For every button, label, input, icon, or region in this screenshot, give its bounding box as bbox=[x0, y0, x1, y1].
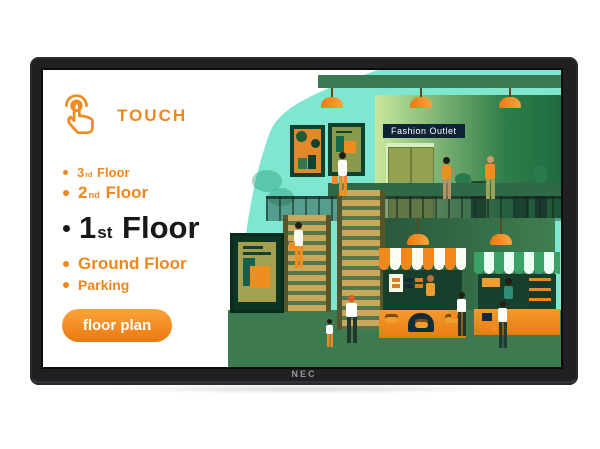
bottle-shelf bbox=[529, 278, 551, 308]
floor-label: 2nd Floor bbox=[78, 183, 148, 203]
product-image: TOUCH 3rd Floor 2nd Floor 1st Floor Grou… bbox=[0, 0, 600, 449]
lamp-cord bbox=[509, 88, 511, 97]
bullet-icon bbox=[63, 225, 70, 232]
digital-signage-totem[interactable] bbox=[230, 233, 284, 313]
ceiling-beam bbox=[318, 75, 561, 88]
floor-label: Parking bbox=[78, 277, 129, 293]
person-shopper bbox=[498, 301, 507, 348]
person-mother bbox=[346, 295, 357, 343]
hand-tap-icon bbox=[59, 92, 103, 140]
floor-label: 1st Floor bbox=[79, 210, 200, 246]
lamp-cord bbox=[420, 88, 422, 97]
person-server bbox=[426, 275, 435, 296]
person-boy bbox=[326, 319, 333, 347]
floor-item-parking[interactable]: Parking bbox=[63, 277, 129, 293]
shopping-bag-icon bbox=[491, 323, 497, 331]
kiosk-interior bbox=[478, 274, 556, 309]
escalator-right bbox=[337, 190, 385, 330]
floor-item-3rd[interactable]: 3rd Floor bbox=[63, 165, 130, 180]
pendant-lamp-icon bbox=[410, 97, 432, 108]
awning-green bbox=[474, 252, 560, 269]
pendant-lamp-icon bbox=[490, 234, 512, 245]
touch-indicator: TOUCH bbox=[59, 92, 219, 138]
burger-icon bbox=[385, 317, 398, 323]
kiosk-sign bbox=[482, 278, 500, 287]
bullet-icon bbox=[63, 261, 69, 267]
person-shopper bbox=[457, 292, 466, 336]
escalator-left bbox=[283, 215, 331, 312]
bullet-icon bbox=[63, 170, 68, 175]
awning-orange bbox=[379, 248, 466, 265]
touch-label: TOUCH bbox=[117, 106, 187, 126]
floor-item-1st-active[interactable]: 1st Floor bbox=[63, 210, 200, 246]
register bbox=[482, 313, 492, 321]
burger-kiosk bbox=[379, 248, 466, 338]
shopping-bag-icon bbox=[332, 176, 338, 184]
pendant-lamp-icon bbox=[321, 97, 343, 108]
floor-item-2nd[interactable]: 2nd Floor bbox=[63, 183, 148, 203]
floor-plan-button[interactable]: floor plan bbox=[62, 309, 172, 342]
pendant-lamp-icon bbox=[407, 234, 429, 245]
totem-screen bbox=[238, 242, 276, 302]
display-screen: TOUCH 3rd Floor 2nd Floor 1st Floor Grou… bbox=[43, 70, 561, 367]
lamp-cord bbox=[331, 88, 333, 97]
mannequin bbox=[485, 156, 495, 199]
kiosk-counter bbox=[474, 309, 560, 335]
floor-label: Ground Floor bbox=[78, 254, 187, 274]
person-shopper-door bbox=[442, 157, 451, 199]
bullet-icon bbox=[63, 282, 69, 288]
floor-item-ground[interactable]: Ground Floor bbox=[63, 254, 187, 274]
display-monitor: TOUCH 3rd Floor 2nd Floor 1st Floor Grou… bbox=[30, 57, 578, 385]
store-sign: Fashion Outlet bbox=[383, 124, 465, 138]
lamp-cord bbox=[417, 218, 419, 234]
handbag-icon bbox=[289, 242, 295, 250]
drink-kiosk bbox=[474, 252, 560, 335]
mall-illustration: Fashion Outlet bbox=[228, 70, 561, 367]
kiosk-interior bbox=[383, 270, 462, 310]
pendant-lamp-icon bbox=[499, 97, 521, 108]
menu-board bbox=[389, 274, 403, 292]
burger-icon bbox=[415, 322, 428, 328]
shopping-bag-icon bbox=[451, 311, 457, 319]
poster-bags bbox=[290, 125, 325, 177]
bullet-icon bbox=[63, 190, 69, 196]
person-barista bbox=[504, 278, 513, 299]
plant bbox=[533, 165, 547, 183]
lamp-cord bbox=[500, 218, 502, 234]
nec-logo: NEC bbox=[30, 369, 578, 383]
person-walkway bbox=[338, 152, 347, 196]
floor-label: 3rd Floor bbox=[77, 165, 130, 180]
person-on-stairs bbox=[294, 222, 303, 268]
